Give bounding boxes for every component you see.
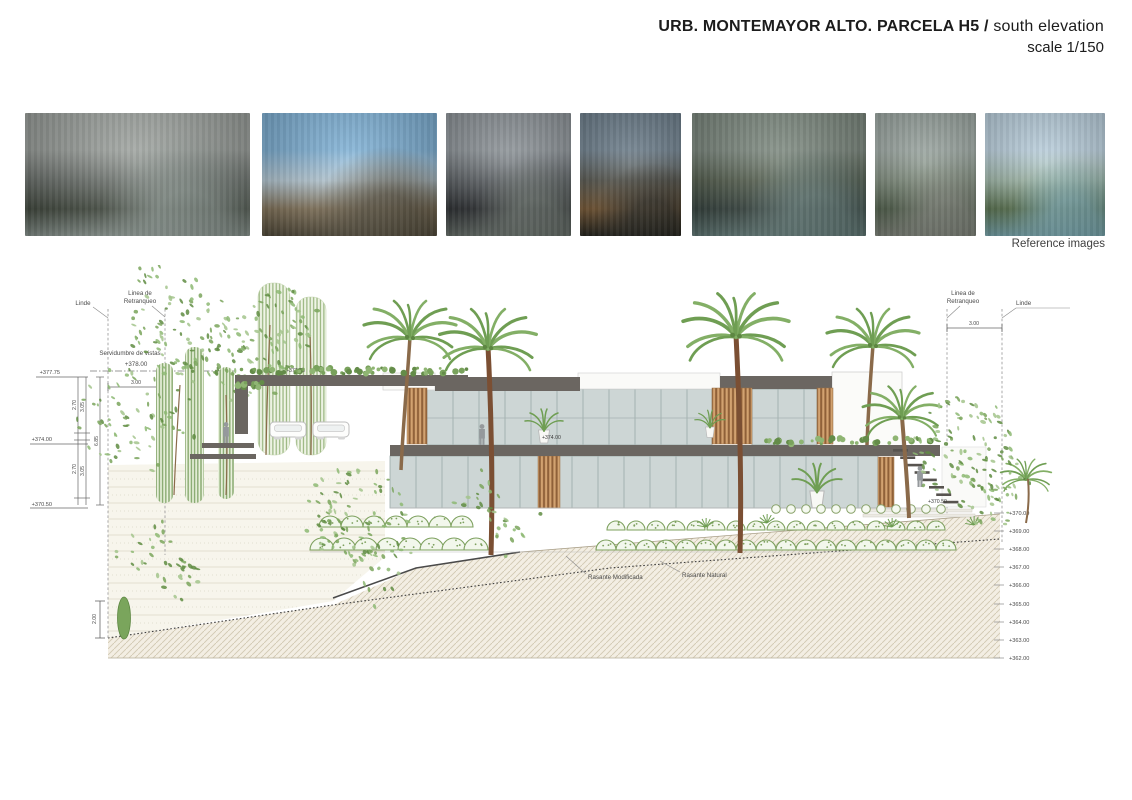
leaf-speckle <box>81 399 86 401</box>
leaf-speckle <box>168 302 172 306</box>
leaf-speckle <box>199 335 205 340</box>
leaf-speckle <box>1003 445 1010 451</box>
elevation-scale-label: +368.00 <box>1009 547 1029 553</box>
hedge-bush <box>442 538 466 550</box>
leaf-speckle <box>187 341 192 345</box>
leaf-speckle <box>241 340 245 343</box>
leaf-speckle <box>976 415 980 419</box>
leaf-speckle <box>979 411 984 416</box>
leaf-speckle <box>160 353 164 357</box>
reference-image-5 <box>692 113 866 236</box>
dim-270-upper: 2.70 <box>72 400 78 410</box>
roof-vegetation <box>282 370 287 375</box>
leaf-speckle <box>231 352 234 357</box>
roof-vegetation <box>346 369 352 375</box>
leaf-speckle <box>210 335 213 339</box>
timber-screen-5 <box>878 457 894 507</box>
stair-tread <box>922 479 937 482</box>
leaf-speckle <box>111 396 116 400</box>
leaf-speckle <box>153 377 156 382</box>
main-floor-level-label: +374.00 <box>542 435 561 441</box>
hedge-bush <box>767 521 785 530</box>
leaf-speckle <box>233 328 238 330</box>
level-37775-label: +377.75 <box>40 370 60 376</box>
leaf-speckle <box>138 266 142 271</box>
roof-vegetation <box>252 368 256 372</box>
leaf-speckle <box>185 337 190 342</box>
rasante-natural-label: Rasante Natural <box>682 572 727 579</box>
leaf-speckle <box>131 323 137 327</box>
leaf-speckle <box>189 303 194 308</box>
leaf-speckle <box>179 298 184 304</box>
roof-vegetation <box>862 436 869 443</box>
leaf-speckle <box>133 441 140 445</box>
reference-image-1 <box>25 113 250 236</box>
leaf-speckle <box>155 274 160 279</box>
ball-plant <box>922 505 931 514</box>
leaf-speckle <box>932 468 936 472</box>
dim-305-upper: 3.05 <box>80 402 86 412</box>
roof-vegetation <box>377 367 381 371</box>
leaf-speckle <box>236 317 239 319</box>
reference-image-4 <box>580 113 681 236</box>
timber-screen-4 <box>538 456 560 508</box>
ball-plant <box>862 505 871 514</box>
leaf-speckle <box>186 309 190 315</box>
hedge-bush <box>707 521 725 530</box>
leaf-speckle <box>1003 523 1007 526</box>
terrace-level-label: +370.50 <box>928 499 947 505</box>
leaf-speckle <box>988 417 993 423</box>
leaf-speckle <box>990 459 996 464</box>
stair-tread <box>936 493 951 496</box>
leaf-speckle <box>235 331 242 337</box>
roof-vegetation <box>774 438 781 445</box>
leaf-speckle <box>97 403 100 407</box>
cypress-bush <box>118 597 131 639</box>
roof-vegetation <box>459 368 465 374</box>
roof-vegetation <box>263 367 269 373</box>
leaf-speckle <box>972 435 976 441</box>
roof-vegetation <box>424 368 428 372</box>
glass-panel <box>752 389 817 445</box>
roof-vegetation <box>908 438 913 443</box>
leaf-speckle <box>219 332 223 338</box>
reference-image-2 <box>262 113 437 236</box>
leaf-speckle <box>144 273 147 278</box>
roof-vegetation <box>235 382 242 389</box>
roof-vegetation <box>799 440 804 445</box>
roof-vegetation <box>326 366 331 371</box>
leaf-speckle <box>206 302 211 307</box>
ball-plant <box>892 505 901 514</box>
leaf-speckle <box>104 423 109 428</box>
leaf-speckle <box>180 311 186 317</box>
leaf-speckle <box>961 400 965 404</box>
leaf-speckle <box>109 459 113 464</box>
leaf-speckle <box>958 416 963 421</box>
level-37050-label: +370.50 <box>32 502 52 508</box>
leaf-speckle <box>935 430 940 433</box>
leaf-speckle <box>932 482 938 485</box>
leaf-speckle <box>955 412 961 417</box>
roof-vegetation <box>259 380 264 385</box>
leaf-speckle <box>1011 492 1014 496</box>
roof-vegetation <box>465 367 469 371</box>
leaf-speckle <box>190 350 195 352</box>
hedge-bush <box>429 516 451 527</box>
south-elevation-svg: Rasante Modificada Rasante Natural 2.00 … <box>30 265 1105 675</box>
hedge-bush <box>847 521 865 530</box>
mid-floor-slab <box>390 445 940 456</box>
roof-vegetation <box>850 440 854 444</box>
hedge-bush <box>616 540 636 550</box>
leaf-speckle <box>252 304 256 308</box>
hedge-bush <box>867 521 885 530</box>
leaf-speckle <box>190 284 195 291</box>
leaf-speckle <box>509 536 515 543</box>
dim-685-total: 6.85 <box>94 436 100 446</box>
roof-vegetation <box>874 439 880 445</box>
roof-vegetation <box>382 366 388 372</box>
leaf-speckle <box>147 402 149 407</box>
leaf-speckle <box>206 333 209 339</box>
reference-images-strip <box>0 113 1132 236</box>
roof-vegetation <box>257 369 263 375</box>
roof-vegetation <box>855 441 859 445</box>
rasante-modificada-label: Rasante Modificada <box>588 574 643 581</box>
leaf-speckle <box>496 526 502 532</box>
leaf-speckle <box>214 347 220 351</box>
leaf-speckle <box>386 479 390 481</box>
leaf-speckle <box>134 457 140 460</box>
leaf-speckle <box>1005 519 1010 522</box>
leaf-speckle <box>1005 492 1010 497</box>
roof-vegetation <box>342 372 345 375</box>
glass-panel <box>427 389 712 445</box>
roof-vegetation <box>276 370 282 376</box>
roof-vegetation <box>840 437 845 442</box>
linde-left-label: Linde <box>75 300 91 307</box>
leaf-speckle <box>241 314 247 319</box>
leaf-speckle <box>376 566 381 571</box>
leaf-speckle <box>99 398 102 402</box>
leaf-speckle <box>133 310 138 314</box>
hedge-bush <box>607 521 625 530</box>
leaf-speckle <box>991 468 997 473</box>
leaf-speckle <box>995 414 1001 420</box>
roof-vegetation <box>363 371 369 377</box>
dim-270-lower: 2.70 <box>72 464 78 474</box>
hedge-bush <box>420 538 444 550</box>
leaf-speckle <box>146 392 150 395</box>
leaf-speckle <box>231 359 236 364</box>
leaf-speckle <box>98 452 102 456</box>
stair-tread <box>929 486 944 489</box>
hedge-bush <box>451 516 473 527</box>
roof-vegetation <box>293 371 296 374</box>
leaf-speckle <box>142 279 147 285</box>
leaf-speckle <box>1000 450 1004 454</box>
ball-plant <box>832 505 841 514</box>
leaf-speckle <box>393 553 398 559</box>
retranqueo-right-label-2: Retranqueo <box>947 298 980 305</box>
leaf-speckle <box>144 426 147 432</box>
glass-panel <box>390 456 878 508</box>
leaf-speckle <box>164 341 168 346</box>
leaf-speckle <box>210 327 213 332</box>
hedge-bush <box>627 521 645 530</box>
linde-right-label: Linde <box>1016 300 1032 307</box>
ball-plant <box>802 505 811 514</box>
retranqueo-right-label-1: Linea de <box>951 290 975 297</box>
person-silhouette-stairs <box>917 466 923 487</box>
sheet-title: URB. MONTEMAYOR ALTO. PARCELA H5 / south… <box>658 18 1104 36</box>
leaf-speckle <box>928 412 932 415</box>
leaf-speckle <box>179 320 185 324</box>
elevation-scale-label: +362.00 <box>1009 656 1029 662</box>
leaf-speckle <box>935 488 939 491</box>
leaf-speckle <box>181 431 185 434</box>
roof-vegetation <box>309 368 315 374</box>
roof-vegetation <box>442 372 445 375</box>
roof-vegetation <box>887 441 891 445</box>
leaf-speckle <box>957 426 960 431</box>
leaf-speckle <box>290 296 294 300</box>
leaf-speckle <box>142 326 146 330</box>
leaf-speckle <box>180 332 183 336</box>
roof-vegetation <box>452 368 458 374</box>
leaf-speckle <box>944 442 948 446</box>
leaf-speckle <box>174 406 178 413</box>
roof-vegetation <box>428 370 434 376</box>
leaf-speckle <box>135 407 140 413</box>
stair-tread <box>900 456 915 459</box>
leaf-speckle <box>989 502 995 507</box>
roof-vegetation <box>829 440 833 444</box>
leaf-speckle <box>234 368 237 374</box>
leaf-speckle <box>192 434 196 440</box>
ball-plant <box>787 505 796 514</box>
leaf-speckle <box>198 293 202 298</box>
leaf-speckle <box>1003 433 1008 437</box>
elevation-scale-label: +366.00 <box>1009 583 1029 589</box>
leaf-speckle <box>157 265 162 269</box>
reference-images-caption: Reference images <box>1012 238 1105 250</box>
leaf-speckle <box>113 455 118 460</box>
leaf-speckle <box>138 329 143 336</box>
sheet-scale: scale 1/150 <box>658 39 1104 56</box>
leaf-speckle <box>227 334 231 339</box>
sheet-header: URB. MONTEMAYOR ALTO. PARCELA H5 / south… <box>658 18 1104 56</box>
leaf-speckle <box>977 484 981 487</box>
stair-tread <box>907 464 922 467</box>
leaf-speckle <box>182 278 188 283</box>
leaf-speckle <box>988 473 992 478</box>
leaf-speckle <box>150 435 156 441</box>
carport-post <box>235 386 248 434</box>
leaf-speckle <box>249 338 254 342</box>
servidumbre-label: Servidumbre de vistas <box>99 350 160 357</box>
architecture-sheet: { "header": { "title_bold": "URB. MONTEM… <box>0 0 1132 800</box>
leaf-speckle <box>155 325 159 329</box>
hedge-bush <box>398 538 422 550</box>
leaf-speckle <box>987 494 991 501</box>
leaf-speckle <box>994 405 998 409</box>
roof-vegetation <box>251 384 254 387</box>
ball-plant <box>847 505 856 514</box>
level-37400-label: +374.00 <box>32 437 52 443</box>
leaf-speckle <box>1012 483 1017 489</box>
leaf-speckle <box>986 447 991 452</box>
leaf-speckle <box>193 277 199 283</box>
leaf-speckle <box>216 362 222 369</box>
reference-image-6 <box>875 113 976 236</box>
leaf-speckle <box>135 446 141 451</box>
retranqueo-left-label-2: Retranqueo <box>124 298 157 305</box>
reference-image-3 <box>446 113 571 236</box>
leaf-speckle <box>116 401 122 407</box>
leaf-speckle <box>175 371 181 375</box>
roof-vegetation <box>285 367 288 370</box>
leaf-speckle <box>984 417 988 421</box>
leaf-speckle <box>208 339 214 345</box>
left-dimension-stack: +377.75 +374.00 +370.50 2.70 3.05 2.70 3… <box>30 370 104 508</box>
roof-vegetation <box>240 368 243 371</box>
leaf-speckle <box>130 343 136 349</box>
roof-vegetation <box>244 381 247 384</box>
leaf-speckle <box>994 436 997 439</box>
leaf-speckle <box>219 299 224 303</box>
roof-vegetation <box>788 440 794 446</box>
leaf-speckle <box>244 330 250 337</box>
roof-vegetation <box>893 435 899 441</box>
roof-vegetation <box>254 381 258 385</box>
leaf-speckle <box>386 567 391 572</box>
ball-plant <box>877 505 886 514</box>
elevation-scale-label: +363.00 <box>1009 638 1029 644</box>
hedge-bush <box>385 516 407 527</box>
hedge-bush <box>596 540 616 550</box>
dim-305-lower: 3.05 <box>80 466 86 476</box>
sheet-title-regular: south elevation <box>993 18 1104 35</box>
roof-vegetation <box>389 367 396 374</box>
leaf-speckle <box>141 308 145 311</box>
hedge-row <box>310 505 981 552</box>
elevation-scale-label: +364.00 <box>1009 620 1029 626</box>
sheet-title-bold: URB. MONTEMAYOR ALTO. PARCELA H5 / <box>658 18 988 35</box>
roof-vegetation <box>269 367 275 373</box>
dim-3m-left: 3.00 <box>131 380 141 386</box>
leaf-speckle <box>117 450 121 453</box>
leaf-speckle <box>208 348 212 353</box>
leaf-speckle <box>146 274 153 279</box>
ball-plant <box>937 505 946 514</box>
roof-vegetation <box>321 371 325 375</box>
carport-roof-slab <box>235 375 468 386</box>
leaf-speckle <box>165 285 168 289</box>
leaf-speckle <box>196 317 201 321</box>
roof-vegetation <box>767 438 771 442</box>
leaf-speckle <box>151 267 154 272</box>
timber-screen-1 <box>407 388 427 444</box>
reference-image-7 <box>985 113 1105 236</box>
roof-vegetation <box>811 439 814 442</box>
leaf-speckle <box>990 495 994 499</box>
elevation-scale-label: +365.00 <box>1009 602 1029 608</box>
timber-screen-2 <box>712 388 752 444</box>
roof-vegetation <box>439 367 442 370</box>
elevation-drawing-container: Rasante Modificada Rasante Natural 2.00 … <box>30 265 1105 675</box>
leaf-speckle <box>1015 493 1018 500</box>
leaf-speckle <box>948 429 953 435</box>
white-fascia-center <box>578 373 720 389</box>
elevation-scale-label: +369.00 <box>1009 529 1029 535</box>
ball-plant <box>817 505 826 514</box>
dim-3m-right: 3.00 <box>969 321 979 327</box>
leaf-speckle <box>77 426 82 430</box>
retranqueo-left-label-1: Linea de <box>128 290 152 297</box>
roof-vegetation <box>297 370 301 374</box>
car-outline-1 <box>270 422 306 440</box>
leaf-speckle <box>206 371 211 377</box>
elevation-scale-label: +367.00 <box>1009 565 1029 571</box>
roof-vegetation <box>410 371 416 377</box>
dim-2m-label: 2.00 <box>92 614 98 624</box>
leaf-speckle <box>227 348 232 354</box>
level-378-label: +378.00 <box>125 361 148 368</box>
leaf-speckle <box>1015 463 1019 466</box>
hedge-bush <box>787 521 805 530</box>
roof-vegetation <box>416 367 419 370</box>
leaf-speckle <box>254 316 258 321</box>
roof-vegetation <box>357 369 363 375</box>
leaf-speckle <box>124 373 129 377</box>
leaf-speckle <box>119 409 126 416</box>
leaf-speckle <box>148 445 152 448</box>
leaf-speckle <box>969 402 975 407</box>
roof-vegetation <box>815 436 821 442</box>
leaf-speckle <box>214 324 220 328</box>
leaf-speckle <box>204 356 209 362</box>
leaf-speckle <box>88 384 93 389</box>
leaf-speckle <box>502 522 508 528</box>
leaf-speckle <box>173 329 177 331</box>
leaf-speckle <box>980 419 987 425</box>
roof-vegetation <box>301 368 304 371</box>
leaf-speckle <box>979 510 984 515</box>
hedge-bush <box>827 521 845 530</box>
car-outline-2 <box>313 422 349 440</box>
leaf-speckle <box>984 442 987 446</box>
leaf-speckle <box>115 443 120 450</box>
leaf-speckle <box>186 322 191 327</box>
leaf-speckle <box>538 512 543 516</box>
ball-plant <box>772 505 781 514</box>
leaf-speckle <box>129 440 133 444</box>
leaf-speckle <box>137 340 140 345</box>
leaf-speckle <box>104 453 110 456</box>
leaf-speckle <box>968 413 973 418</box>
leaf-speckle <box>131 316 135 320</box>
leaf-speckle <box>982 437 985 442</box>
leaf-speckle <box>132 435 137 440</box>
leaf-speckle <box>137 279 142 283</box>
roof-vegetation <box>401 370 408 377</box>
leaf-speckle <box>92 402 96 406</box>
leaf-speckle <box>87 445 92 451</box>
leaf-speckle <box>248 391 252 395</box>
